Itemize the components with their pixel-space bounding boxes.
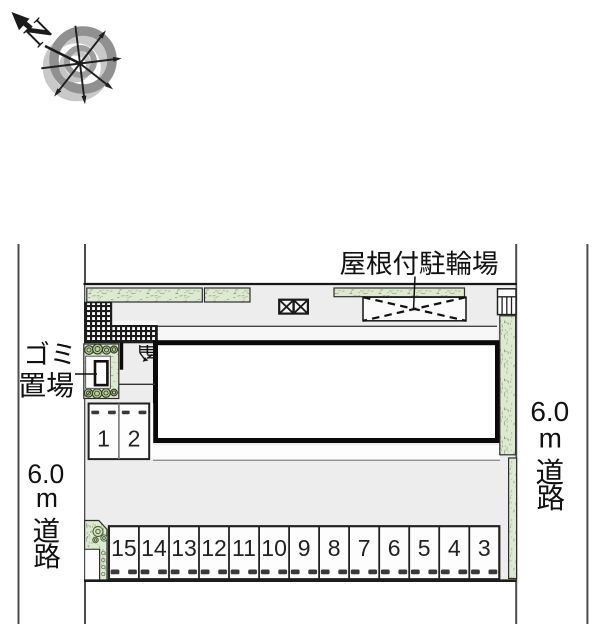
svg-text:14: 14 [141,535,167,561]
svg-text:4: 4 [448,535,461,561]
svg-text:13: 13 [171,535,197,561]
svg-text:11: 11 [232,535,256,561]
svg-text:m: m [36,483,58,513]
svg-text:10: 10 [261,535,287,561]
svg-text:5: 5 [418,535,431,561]
svg-text:15: 15 [111,535,137,561]
svg-text:8: 8 [328,535,341,561]
svg-text:7: 7 [358,535,371,561]
svg-text:1: 1 [97,426,110,452]
svg-text:2: 2 [128,426,141,452]
svg-text:m: m [539,423,562,454]
svg-text:9: 9 [298,535,311,561]
svg-text:12: 12 [201,535,227,561]
svg-text:3: 3 [478,535,491,561]
svg-text:6: 6 [388,535,401,561]
